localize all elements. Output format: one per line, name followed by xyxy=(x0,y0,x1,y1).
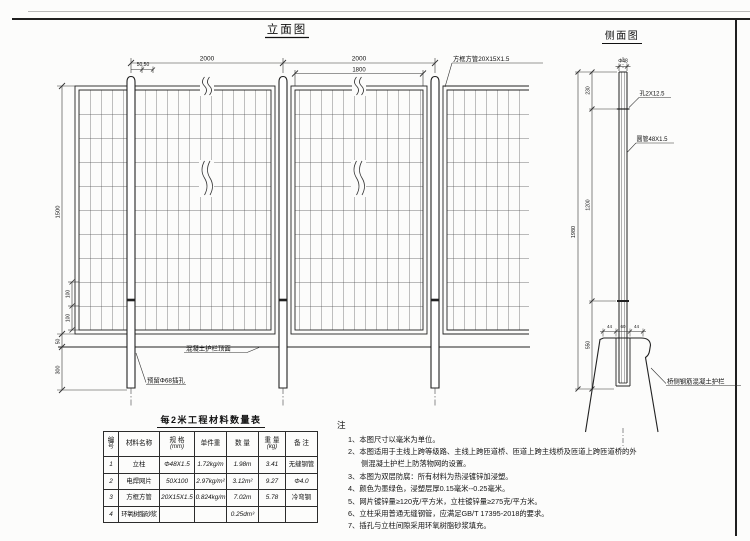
fence-post xyxy=(431,77,440,407)
header-line1: 材料名称 xyxy=(126,440,152,447)
table-header-row: 编号 材料名称 规 格(mm) 单件重 数 量 重 量(kg) 备 注 xyxy=(104,432,318,457)
header-line1: 数 量 xyxy=(235,440,250,447)
table-cell: 0.824kg/m xyxy=(195,490,227,507)
column-header-name: 材料名称 xyxy=(119,432,160,457)
side-post xyxy=(617,72,630,383)
dim-1980: 1980 xyxy=(571,226,577,238)
elevation-labels: 混凝土护栏顶面 预留Φ68插孔 xyxy=(136,344,259,385)
header-line2: (kg) xyxy=(259,444,285,451)
table-cell: 50X100 xyxy=(160,473,195,490)
side-labels: 孔2X12.5 圆管48X1.5 xyxy=(628,90,675,153)
table-cell: 立柱 xyxy=(119,457,160,474)
fence-post xyxy=(127,77,136,407)
socket-hole xyxy=(616,338,630,386)
table-cell: 无缝钢管 xyxy=(286,457,318,474)
material-table-title: 每2米工程材料数量表 xyxy=(157,413,264,428)
note-item: 6、立柱采用普通无缝钢管，应满足GB/T 17395-2018的要求。 xyxy=(337,508,637,520)
table-cell: 3.12m² xyxy=(227,473,259,490)
tube-label: 圆管48X1.5 xyxy=(637,135,669,143)
header-line2: 号 xyxy=(104,444,118,451)
material-table: 编号 材料名称 规 格(mm) 单件重 数 量 重 量(kg) 备 注 1 立柱… xyxy=(103,431,318,523)
dim-span-left: 2000 xyxy=(200,56,215,63)
dim-1800: 1800 xyxy=(352,68,366,74)
header-line1: 备 注 xyxy=(294,440,309,447)
dim-span-right: 2000 xyxy=(352,56,367,63)
table-row: 2 电焊网片 50X100 2.97kg/m² 3.12m² 9.27 Φ4.0 xyxy=(104,473,318,490)
note-item: 2、本图适用于主线上跨等级路、主线上跨匝道桥、匝道上跨主线桥及匝道上跨匝道桥的外… xyxy=(337,446,637,471)
dim-44-right: 44 xyxy=(634,324,640,329)
dim-50-gap: 50 xyxy=(56,339,62,345)
column-header-no: 编号 xyxy=(104,432,119,457)
table-cell: 3 xyxy=(104,490,119,507)
table-cell: Φ48X1.5 xyxy=(160,457,195,474)
table-row: 1 立柱 Φ48X1.5 1.72kg/m 1.98m 3.41 无缝钢管 xyxy=(104,457,318,474)
side-left-dimensions: 1980 230 1200 550 xyxy=(571,70,617,392)
header-line2: (mm) xyxy=(160,444,194,451)
header-line1: 重 量 xyxy=(264,437,279,444)
note-item: 1、本图尺寸以毫米为单位。 xyxy=(337,434,637,446)
socket-hole-label: 预留Φ68插孔 xyxy=(147,376,185,385)
dim-230: 230 xyxy=(586,86,592,95)
drawing-sheet: { "sheet": { "elevation": { "title": "立面… xyxy=(0,0,750,541)
mesh-panel xyxy=(295,90,423,330)
table-cell: 0.25dm³ xyxy=(227,506,259,523)
table-cell: 方框方管 xyxy=(119,490,160,507)
dim-60: 60 xyxy=(620,324,626,329)
elevation-view: 立面图 xyxy=(56,22,544,406)
note-item: 4、颜色为墨绿色，浸塑层厚0.15毫米--0.25毫米。 xyxy=(337,483,637,495)
column-header-weight: 重 量(kg) xyxy=(259,432,286,457)
table-cell xyxy=(195,506,227,523)
table-cell: 冷弯钢 xyxy=(286,490,318,507)
dim-post-dia: Φ48 xyxy=(618,59,628,65)
side-barrier-label: 桥侧钢筋混凝土护栏 xyxy=(667,377,725,386)
note-item: 7、插孔与立柱间隙采用环氧树脂砂浆填充。 xyxy=(337,520,637,532)
table-cell: 2.97kg/m² xyxy=(195,473,227,490)
dim-50-50: 50,50 xyxy=(137,62,150,68)
table-cell: 1.98m xyxy=(227,457,259,474)
mesh-panel xyxy=(447,90,529,330)
side-barrier-label-group: 桥侧钢筋混凝土护栏 xyxy=(651,368,741,386)
table-cell: 7.02m xyxy=(227,490,259,507)
table-cell: 电焊网片 xyxy=(119,473,160,490)
dim-44-left: 44 xyxy=(607,324,613,329)
column-header-quantity: 数 量 xyxy=(227,432,259,457)
table-cell: 5.78 xyxy=(259,490,286,507)
mesh-panel xyxy=(79,90,271,330)
fence-post xyxy=(279,77,288,407)
table-cell: 4 xyxy=(104,506,119,523)
hole-label: 孔2X12.5 xyxy=(640,90,666,98)
note-item: 5、网片镀锌量≥120克/平方米，立柱镀锌量≥275克/平方米。 xyxy=(337,496,637,508)
barrier-top-label: 混凝土护栏顶面 xyxy=(186,344,231,353)
table-cell: 1 xyxy=(104,457,119,474)
frame-tube-label: 方框方管20X15X1.5 xyxy=(453,54,510,63)
column-header-spec: 规 格(mm) xyxy=(160,432,195,457)
table-cell: Φ4.0 xyxy=(286,473,318,490)
column-header-remark: 备 注 xyxy=(286,432,318,457)
dim-100-lower: 100 xyxy=(66,314,72,323)
dim-300-embed: 300 xyxy=(56,366,62,375)
notes-heading: 注 xyxy=(337,418,637,433)
table-cell: 1.72kg/m xyxy=(195,457,227,474)
table-cell: 3.41 xyxy=(259,457,286,474)
table-row: 3 方框方管 20X15X1.5 0.824kg/m 7.02m 5.78 冷弯… xyxy=(104,490,318,507)
header-line1: 规 格 xyxy=(169,437,184,444)
table-cell xyxy=(259,506,286,523)
dim-mesh-height-1500: 1500 xyxy=(56,206,62,219)
table-row: 4 环氧树脂砂浆 0.25dm³ xyxy=(104,506,318,523)
elevation-title: 立面图 xyxy=(267,22,308,36)
table-cell xyxy=(286,506,318,523)
side-view: 侧面图 Φ48 孔2X12.5 xyxy=(571,29,741,446)
dim-1200: 1200 xyxy=(586,199,592,210)
column-header-unit-weight: 单件重 xyxy=(195,432,227,457)
elevation-top-dimensions: 2000 2000 50,50 1800 方框方管20X15X1.5 xyxy=(128,54,543,87)
notes-block: 注 1、本图尺寸以毫米为单位。 2、本图适用于主线上跨等级路、主线上跨匝道桥、匝… xyxy=(337,418,637,533)
table-cell: 20X15X1.5 xyxy=(160,490,195,507)
header-line1: 编 xyxy=(108,437,115,444)
header-line1: 单件重 xyxy=(201,440,221,447)
dim-550: 550 xyxy=(586,341,592,350)
side-title: 侧面图 xyxy=(605,29,640,42)
table-cell: 9.27 xyxy=(259,473,286,490)
table-cell xyxy=(160,506,195,523)
dim-100-upper: 100 xyxy=(66,290,72,299)
note-item: 3、本图为双层防腐：所有材料为热浸镀锌加浸塑。 xyxy=(337,471,637,483)
mesh-panels xyxy=(75,86,529,334)
table-cell: 环氧树脂砂浆 xyxy=(119,506,160,523)
table-cell: 2 xyxy=(104,473,119,490)
material-table-block: 每2米工程材料数量表 编号 材料名称 规 格(mm) 单件重 数 量 重 量(k… xyxy=(103,413,319,523)
barrier-top-dimensions: 44 60 44 xyxy=(600,324,646,337)
